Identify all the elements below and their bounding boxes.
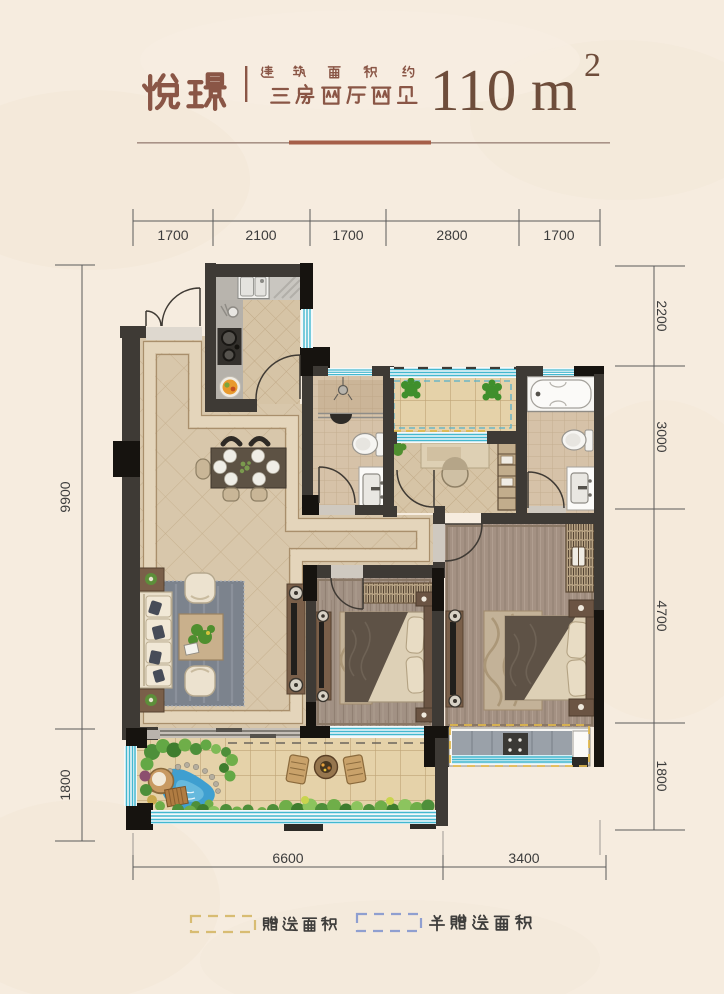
svg-text:1700: 1700	[332, 227, 363, 243]
svg-text:1700: 1700	[157, 227, 188, 243]
svg-text:2100: 2100	[245, 227, 276, 243]
svg-text:6600: 6600	[272, 850, 303, 866]
svg-text:1800: 1800	[57, 769, 73, 800]
svg-text:1700: 1700	[543, 227, 574, 243]
svg-text:3400: 3400	[508, 850, 539, 866]
svg-text:2200: 2200	[654, 300, 670, 331]
svg-text:2800: 2800	[436, 227, 467, 243]
svg-text:2: 2	[584, 47, 601, 84]
svg-text:9900: 9900	[57, 481, 73, 512]
svg-text:4700: 4700	[654, 600, 670, 631]
svg-text:110 m: 110 m	[430, 57, 577, 123]
svg-text:1800: 1800	[654, 760, 670, 791]
svg-text:3000: 3000	[654, 421, 670, 452]
